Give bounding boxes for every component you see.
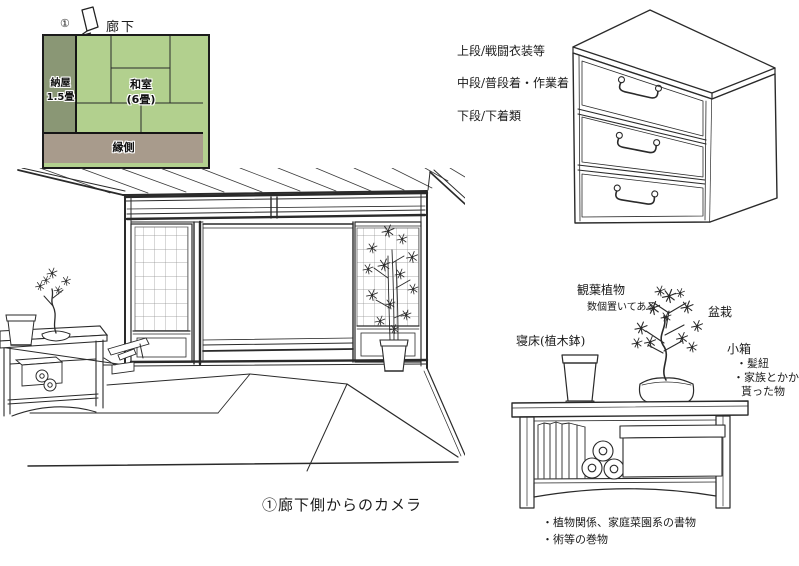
chest-label-bottom: 下段/下着類: [457, 107, 521, 124]
shelf-note-2: ・術等の巻物: [542, 531, 608, 547]
engawa-label: 縁側: [44, 139, 203, 155]
room-perspective-drawing: [0, 168, 465, 500]
camera-marker: ①: [60, 12, 70, 31]
camera-number: ①: [60, 17, 70, 30]
chest-label-middle: 中段/普段着・作業着: [457, 74, 569, 91]
naya-size: 1.5畳: [45, 88, 76, 103]
floor-plan: 納屋 1.5畳 和室 (6畳) 縁側: [42, 34, 210, 169]
naya-label: 納屋: [47, 74, 74, 89]
washitsu-size: (6畳): [111, 91, 171, 107]
design-sheet: ① 廊下 納屋 1.5畳 和室 (6畳) 縁側: [0, 0, 799, 566]
washitsu-label: 和室: [111, 76, 171, 92]
shelf-detail-drawing: [500, 283, 799, 518]
chest-drawing: [556, 6, 796, 228]
corridor-label: 廊下: [106, 16, 136, 35]
chest-label-top: 上段/戦闘衣装等: [457, 42, 545, 59]
camera-caption: ①廊下側からのカメラ: [262, 494, 422, 515]
